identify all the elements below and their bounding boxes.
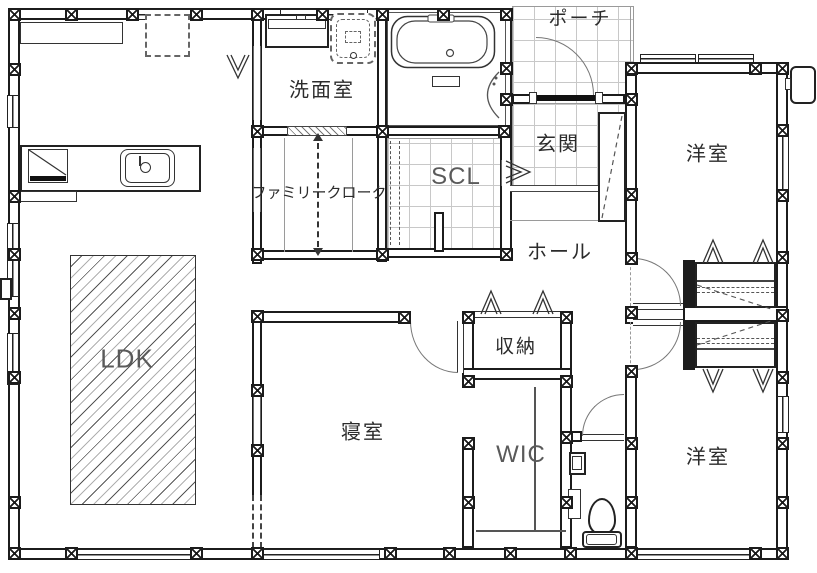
door-swing-arc bbox=[633, 322, 681, 370]
wall bbox=[462, 440, 474, 548]
shelf-dashed-line bbox=[390, 141, 391, 245]
pillar bbox=[443, 547, 456, 560]
wall-opening bbox=[253, 395, 261, 448]
room-label-entrance: 玄関 bbox=[536, 128, 580, 157]
door-jamb bbox=[595, 92, 603, 104]
room-label-western-room-lower: 洋室 bbox=[686, 441, 730, 470]
shelf-line bbox=[476, 530, 566, 532]
washing-machine-mark bbox=[345, 31, 361, 43]
pillar bbox=[8, 307, 21, 320]
window bbox=[7, 95, 19, 128]
window bbox=[777, 396, 789, 433]
kitchen-cupboard bbox=[20, 22, 123, 44]
shoe-cabinet-diagonal bbox=[600, 114, 624, 220]
pillar bbox=[625, 365, 638, 378]
pillar bbox=[384, 547, 397, 560]
room-label-scl: SCL bbox=[431, 163, 481, 191]
door-swing-arc bbox=[633, 258, 681, 306]
window bbox=[640, 54, 696, 63]
cooktop-diagonal bbox=[29, 150, 67, 176]
washbasin-knob bbox=[296, 15, 306, 20]
pillar bbox=[625, 306, 638, 319]
pillar bbox=[498, 125, 511, 138]
pillar bbox=[8, 248, 21, 261]
floor-plan: ポーチ 洗面室 玄関 洋室 SCL ファミリークローク ホール LDK 収納 寝… bbox=[0, 0, 817, 573]
room-label-storage: 収納 bbox=[495, 332, 537, 359]
toilet-tank-inner bbox=[586, 534, 617, 545]
pillar bbox=[776, 309, 789, 322]
pillar bbox=[251, 248, 264, 261]
pillar bbox=[376, 125, 389, 138]
faucet-icon bbox=[140, 162, 151, 173]
pillar bbox=[500, 62, 513, 75]
door-opening-line bbox=[630, 322, 631, 368]
pillar bbox=[749, 62, 762, 75]
pillar bbox=[776, 124, 789, 137]
folding-door-icon bbox=[480, 289, 502, 315]
shelf-dashed-line bbox=[399, 141, 400, 245]
closet-diagonal bbox=[697, 283, 775, 311]
water-heater-nub bbox=[785, 78, 791, 90]
room-label-wic: WIC bbox=[496, 441, 546, 469]
kitchen-counter-return bbox=[20, 191, 77, 202]
folding-door-icon bbox=[702, 238, 724, 264]
pillar bbox=[749, 547, 762, 560]
room-label-washroom: 洗面室 bbox=[289, 74, 355, 103]
pillar bbox=[462, 496, 475, 509]
pillar bbox=[560, 431, 573, 444]
folding-door-icon bbox=[532, 289, 554, 315]
pillar bbox=[126, 8, 139, 21]
closet-shelf-line bbox=[697, 280, 774, 282]
window bbox=[70, 549, 192, 560]
pillar bbox=[500, 8, 513, 21]
room-label-porch: ポーチ bbox=[548, 4, 611, 31]
bathtub-icon bbox=[390, 15, 496, 69]
cooktop-grill bbox=[30, 176, 66, 181]
opening-chevron-icon bbox=[226, 54, 250, 80]
door-swing-arc bbox=[410, 321, 458, 373]
folding-door-icon bbox=[752, 238, 774, 264]
pillar bbox=[776, 437, 789, 450]
pillar bbox=[8, 8, 21, 21]
pillar bbox=[8, 371, 21, 384]
pillar bbox=[190, 547, 203, 560]
pillar bbox=[251, 8, 264, 21]
pillar bbox=[500, 248, 513, 261]
pillar bbox=[316, 8, 329, 21]
wall bbox=[625, 62, 788, 74]
window bbox=[777, 133, 789, 192]
arrow-up-icon bbox=[313, 133, 323, 141]
bath-door-icon bbox=[474, 70, 502, 120]
pillar bbox=[564, 547, 577, 560]
folding-door-icon bbox=[702, 368, 724, 394]
porch-edge-line bbox=[630, 6, 631, 62]
drain-icon bbox=[350, 52, 357, 59]
pillar bbox=[376, 248, 389, 261]
pillar bbox=[776, 547, 789, 560]
closet-diagonal bbox=[697, 318, 775, 346]
toilet-icon bbox=[588, 498, 616, 535]
room-label-ldk: LDK bbox=[100, 344, 154, 375]
pillar bbox=[251, 310, 264, 323]
pillar bbox=[8, 547, 21, 560]
pillar bbox=[625, 252, 638, 265]
opening-chevron-icon bbox=[504, 160, 532, 184]
wall bbox=[434, 212, 444, 252]
pillar bbox=[776, 62, 789, 75]
pillar bbox=[251, 125, 264, 138]
pillar bbox=[8, 190, 21, 203]
pillar bbox=[776, 371, 789, 384]
closet-partition bbox=[683, 320, 695, 370]
pillar bbox=[251, 384, 264, 397]
pillar bbox=[8, 496, 21, 509]
wall bbox=[377, 248, 512, 258]
pillar bbox=[625, 437, 638, 450]
pillar bbox=[560, 375, 573, 388]
pillar bbox=[560, 496, 573, 509]
pillar bbox=[625, 62, 638, 75]
pillar bbox=[251, 444, 264, 457]
pillar bbox=[65, 8, 78, 21]
pillar bbox=[437, 8, 450, 21]
door-leaf bbox=[457, 321, 464, 373]
entrance-step-line bbox=[510, 220, 598, 221]
pillar bbox=[376, 8, 389, 21]
folding-door-icon bbox=[752, 368, 774, 394]
bath-counter bbox=[432, 76, 460, 87]
toilet-cabinet-inner bbox=[572, 456, 582, 470]
wall bbox=[625, 370, 637, 548]
arrow-down-icon bbox=[313, 248, 323, 256]
pillar bbox=[776, 189, 789, 202]
pillar bbox=[8, 63, 21, 76]
pillar bbox=[398, 311, 411, 324]
entrance-step bbox=[510, 185, 598, 192]
window bbox=[263, 549, 380, 560]
pillar bbox=[776, 251, 789, 264]
door-swing-arc bbox=[582, 394, 624, 436]
pillar bbox=[625, 93, 638, 106]
pillar bbox=[462, 437, 475, 450]
shoe-closet-tile-floor bbox=[387, 138, 502, 250]
pillar bbox=[625, 547, 638, 560]
faucet-stem bbox=[139, 156, 141, 166]
pillar bbox=[462, 311, 475, 324]
entrance-door-leaf bbox=[533, 95, 597, 101]
closet-partition bbox=[683, 260, 695, 308]
pillar bbox=[625, 496, 638, 509]
room-label-family-cloak: ファミリークローク bbox=[251, 182, 386, 203]
room-label-western-room-upper: 洋室 bbox=[686, 138, 730, 167]
pillar bbox=[504, 547, 517, 560]
pillar bbox=[500, 93, 513, 106]
closet-shelf-line bbox=[697, 348, 774, 350]
pillar bbox=[251, 547, 264, 560]
window bbox=[633, 549, 757, 560]
pillar bbox=[190, 8, 203, 21]
pillar bbox=[560, 311, 573, 324]
window bbox=[698, 54, 754, 63]
pillar bbox=[776, 496, 789, 509]
pillar bbox=[625, 188, 638, 201]
sliding-door bbox=[252, 495, 262, 548]
ldk-hatched-area bbox=[70, 255, 196, 505]
pillar bbox=[65, 547, 78, 560]
pillar bbox=[462, 375, 475, 388]
room-label-hall: ホール bbox=[527, 236, 593, 265]
refrigerator-space bbox=[145, 14, 190, 57]
door-opening-line bbox=[630, 262, 631, 306]
wall bbox=[252, 311, 410, 323]
water-heater-icon bbox=[790, 66, 816, 104]
room-label-bedroom: 寝室 bbox=[341, 416, 385, 445]
exterior-fixture bbox=[0, 278, 12, 300]
wall bbox=[462, 368, 572, 380]
wall-opening bbox=[253, 46, 261, 120]
